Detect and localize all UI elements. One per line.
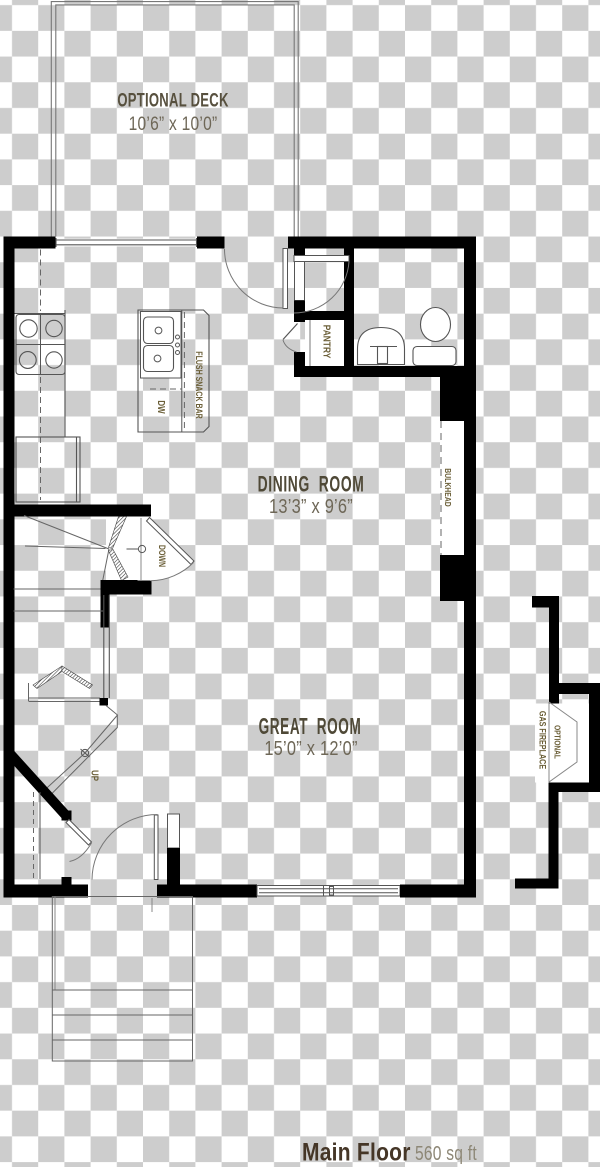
- svg-text:DINING ROOM: DINING ROOM: [258, 471, 365, 496]
- svg-text:UP: UP: [89, 770, 100, 781]
- svg-text:OPTIONAL: OPTIONAL: [553, 725, 563, 759]
- svg-text:Main Floor: Main Floor: [302, 1138, 411, 1166]
- svg-text:GAS FIREPLACE: GAS FIREPLACE: [538, 711, 548, 770]
- svg-text:FLUSH SNACK BAR: FLUSH SNACK BAR: [194, 351, 204, 419]
- svg-text:DW: DW: [156, 400, 167, 414]
- svg-text:10’6” x 10’0”: 10’6” x 10’0”: [129, 113, 218, 135]
- svg-text:PANTRY: PANTRY: [320, 325, 332, 359]
- svg-text:BULKHEAD: BULKHEAD: [443, 468, 453, 507]
- svg-text:560 sq ft: 560 sq ft: [415, 1142, 477, 1164]
- svg-text:OPTIONAL DECK: OPTIONAL DECK: [117, 89, 228, 111]
- svg-text:15’0” x 12’0”: 15’0” x 12’0”: [264, 736, 357, 759]
- svg-text:13’3” x 9’6”: 13’3” x 9’6”: [269, 494, 353, 517]
- svg-text:DOWN: DOWN: [157, 545, 167, 567]
